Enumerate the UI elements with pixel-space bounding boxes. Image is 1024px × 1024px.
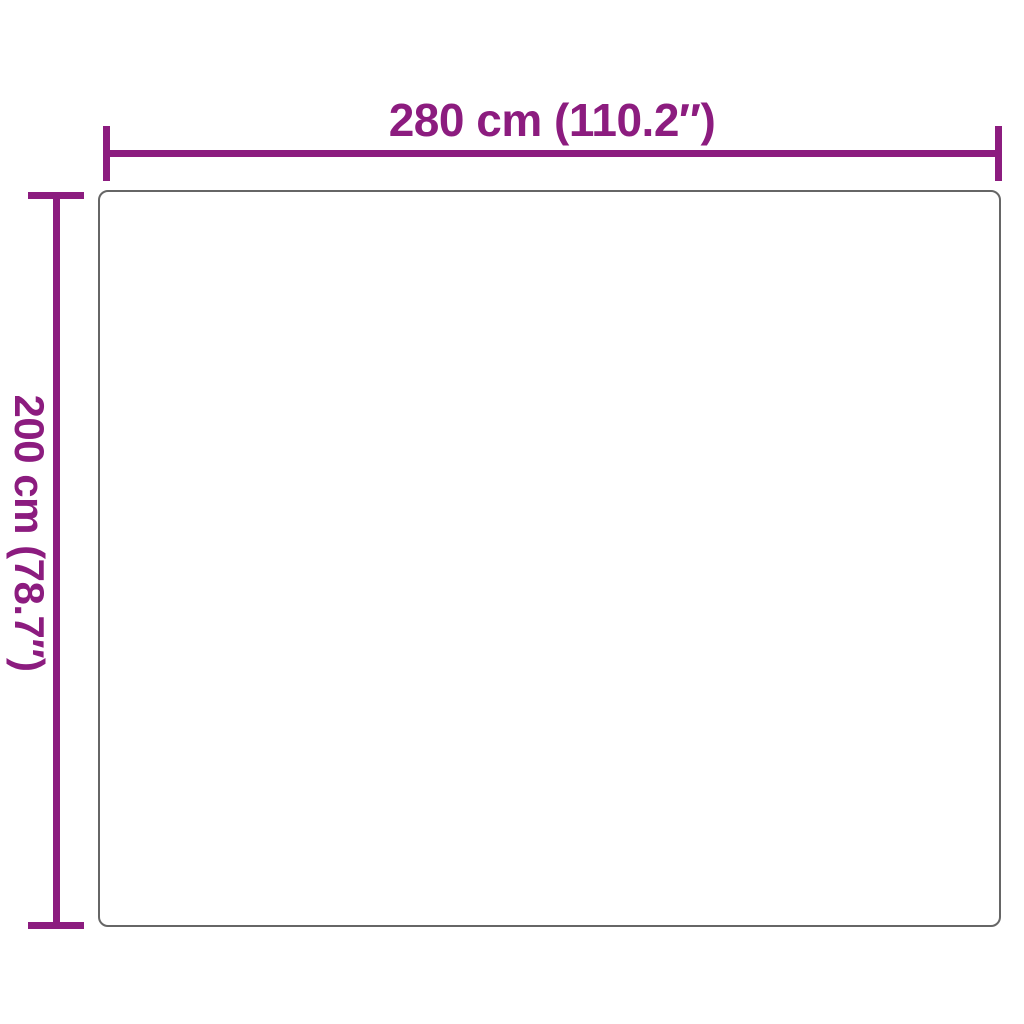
width-dimension-label: 280 cm (110.2″) — [389, 94, 716, 146]
dimension-diagram: 280 cm (110.2″) 200 cm (78.7″) — [0, 0, 1024, 1024]
height-dimension-line — [53, 195, 60, 926]
height-dimension-end-cap-top — [28, 192, 84, 199]
product-outline-rectangle — [98, 190, 1001, 927]
width-dimension-line — [106, 150, 999, 157]
width-dimension-end-cap-right — [995, 126, 1002, 181]
width-dimension-end-cap-left — [103, 126, 110, 181]
height-dimension-label: 200 cm (78.7″) — [6, 395, 52, 672]
height-dimension-end-cap-bottom — [28, 922, 84, 929]
